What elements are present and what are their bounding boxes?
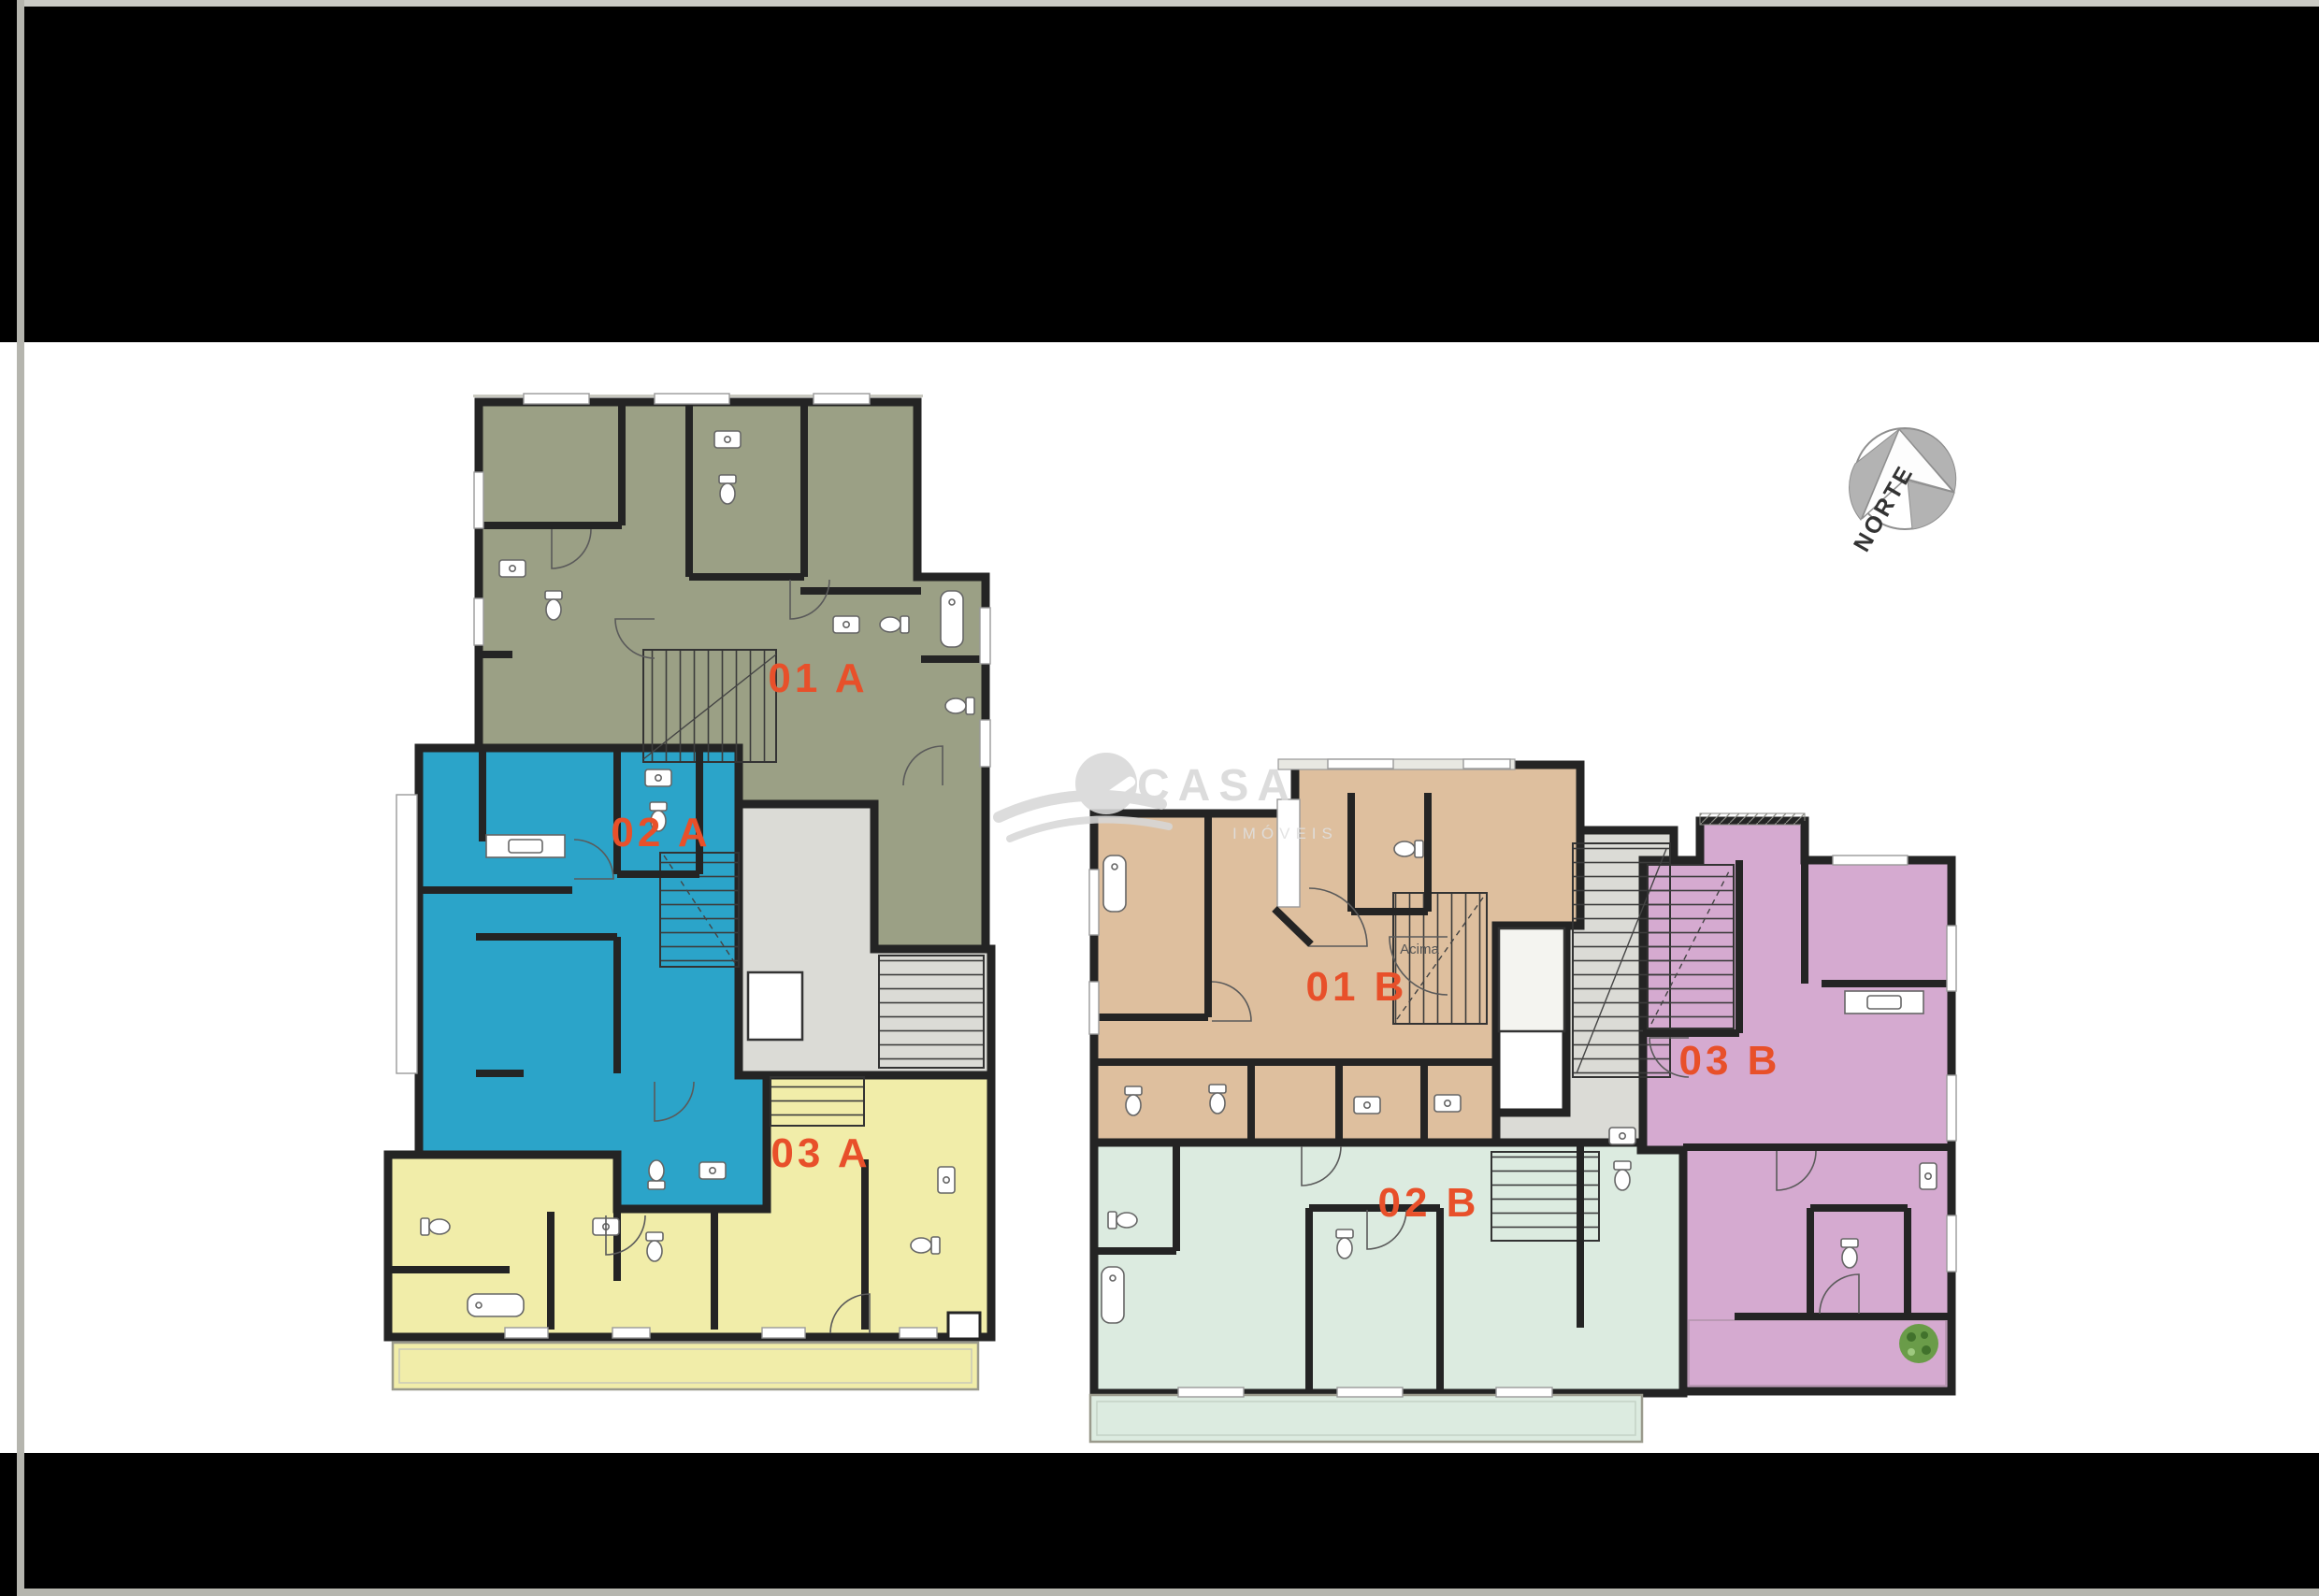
window-band bbox=[396, 795, 417, 1073]
unit-01b-label: 01 B bbox=[1306, 964, 1408, 1010]
watermark-tagline-text: IMÓVEIS bbox=[1232, 825, 1338, 842]
tree-icon bbox=[1899, 1324, 1938, 1363]
bottom-band bbox=[0, 1453, 2319, 1596]
window-band bbox=[1277, 799, 1300, 907]
floor-plan-drawing: 01 A 02 A 03 A bbox=[0, 0, 2319, 1596]
unit-01a-label: 01 A bbox=[768, 655, 868, 701]
unit-03a-label: 03 A bbox=[771, 1130, 871, 1176]
left-page-edge-line bbox=[17, 0, 24, 1596]
stair-note-acima: Acima bbox=[1400, 942, 1439, 957]
floor-plan-tower-a: 01 A 02 A 03 A bbox=[388, 394, 991, 1389]
corner-box bbox=[948, 1313, 980, 1339]
unit-02a-region bbox=[419, 748, 767, 1209]
floor-plan-sheet: 01 A 02 A 03 A bbox=[0, 0, 2319, 1596]
bottom-hairline bbox=[24, 1589, 2319, 1596]
unit-02b-label: 02 B bbox=[1378, 1180, 1480, 1226]
top-hairline bbox=[24, 0, 2319, 7]
top-band bbox=[0, 0, 2319, 342]
unit-02a-label: 02 A bbox=[611, 810, 711, 856]
watermark-brand-text: CASA bbox=[1137, 761, 1298, 811]
hatched-wall-band bbox=[1700, 813, 1805, 825]
unit-03b-label: 03 B bbox=[1679, 1038, 1781, 1084]
core-room bbox=[1499, 928, 1564, 1031]
